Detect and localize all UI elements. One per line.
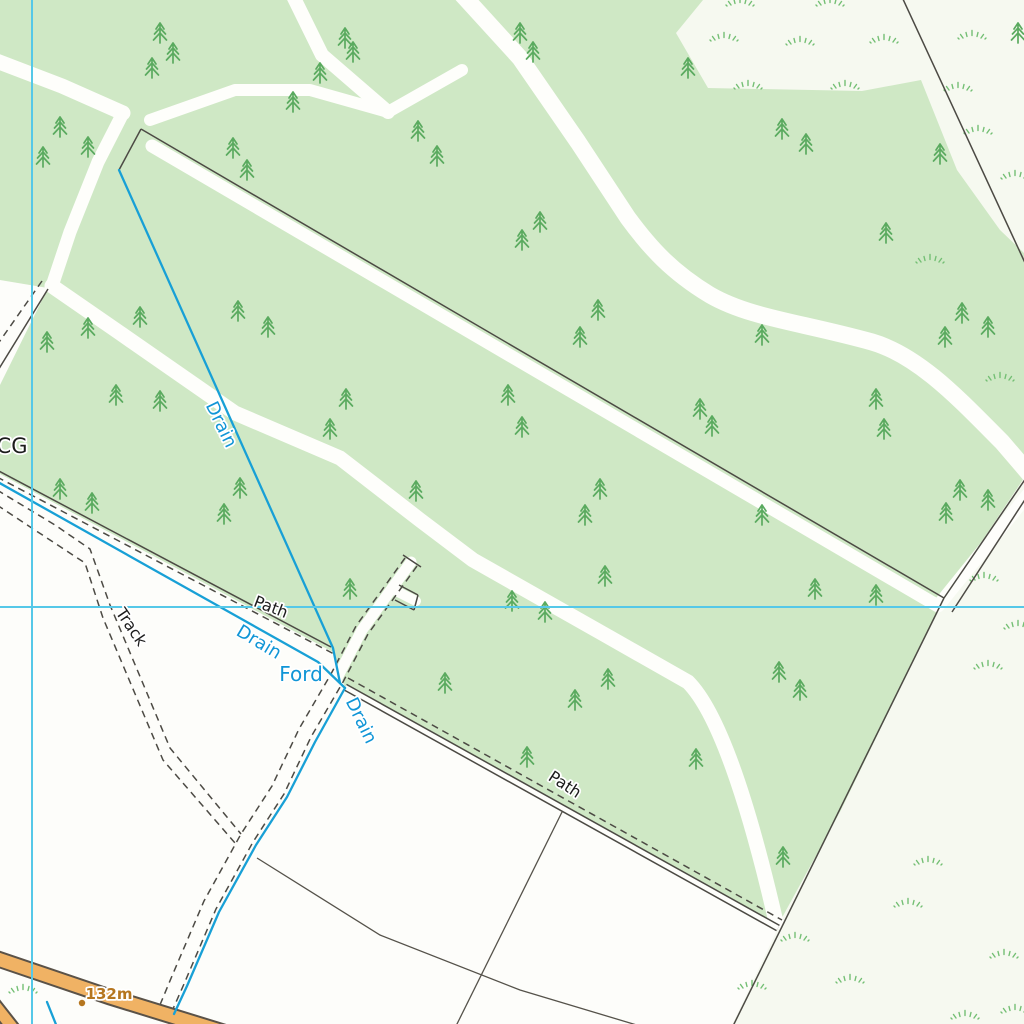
map-canvas[interactable]: CGDrainDrainFordDrainPathPathTrack132m: [0, 0, 1024, 1024]
map-label-spot-height: 132m: [86, 985, 133, 1003]
map-label-ford: Ford: [279, 662, 323, 686]
map-label-cg: CG: [0, 434, 27, 458]
map-surface[interactable]: CGDrainDrainFordDrainPathPathTrack132m: [0, 0, 1024, 1024]
spot-height-dot: [79, 1000, 85, 1006]
